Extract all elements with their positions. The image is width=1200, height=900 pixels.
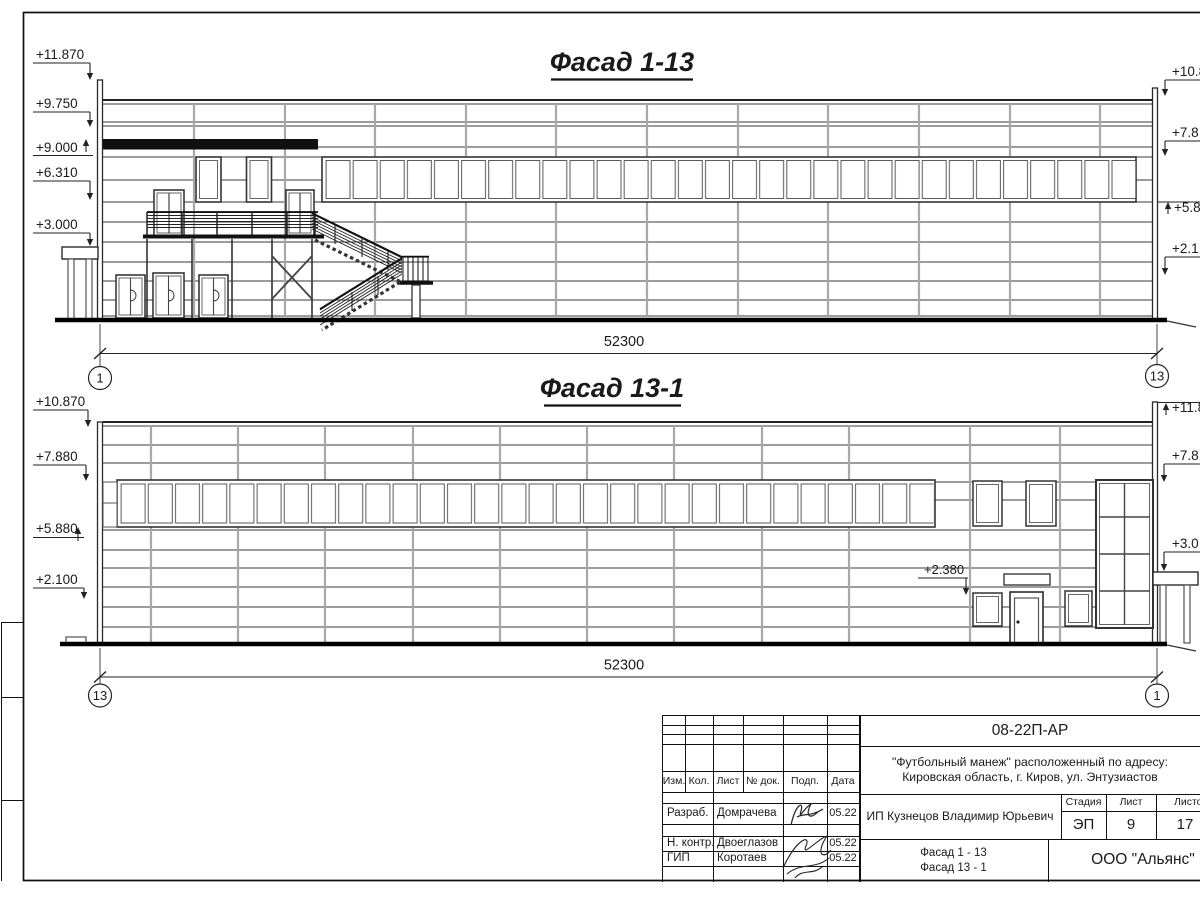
elevation-mark: +7.8	[1172, 125, 1199, 140]
balcony-door	[154, 190, 184, 236]
col-header-podp: Подп.	[783, 771, 827, 792]
organization-name: ООО "Альянс"	[1048, 839, 1200, 882]
document-number: 08-22П-АР	[859, 716, 1200, 746]
window-band-left-notch	[103, 482, 117, 527]
lower-window	[973, 593, 1002, 626]
tb-line	[663, 734, 859, 735]
elevation-mark: +9.000	[36, 140, 78, 155]
role-checker: Н. контр.	[667, 836, 713, 851]
col-header-izm: Изм.	[663, 771, 685, 792]
elevation-mark: +3.000	[36, 217, 78, 232]
elevation-mark: +5.880	[36, 521, 78, 536]
elevation-mark: +7.880	[36, 449, 78, 464]
col-header-doc: № док.	[743, 771, 783, 792]
tb-line	[663, 824, 859, 825]
sheets-label: Листов	[1156, 794, 1200, 811]
content-line-1: Фасад 1 - 13	[920, 846, 987, 860]
col-header-list: Лист	[713, 771, 743, 792]
corner-pilaster-left	[98, 80, 103, 320]
grid-bubble: 13	[93, 688, 107, 703]
tb-line	[663, 725, 859, 726]
elevation-mark: +2.1	[1172, 241, 1199, 256]
drawing-sheet: Фасад 1-13	[0, 0, 1200, 900]
elevation-mark: +10.8	[1172, 64, 1200, 79]
tb-line	[663, 792, 859, 793]
elevation-mark: +11.870	[36, 47, 84, 62]
elevation-marks-right: +10.8 +7.8 +5.8 +2.1	[1158, 64, 1200, 275]
balcony-door	[286, 190, 314, 236]
panel-joints	[194, 104, 1100, 316]
name-checker: Двоеглазов	[717, 836, 783, 851]
facade-13-1: Фасад 13-1	[33, 373, 1200, 707]
panel-joints	[151, 426, 1060, 642]
elevation-marks-right: +11.8 +7.8 +3.0	[1157, 400, 1200, 571]
project-line-1: "Футбольный манеж" расположенный по адре…	[892, 755, 1168, 770]
annotation-2380: +2.380	[918, 562, 969, 595]
elevation-mark: +3.0	[1172, 536, 1199, 551]
elevation-mark: +7.8	[1172, 448, 1199, 463]
tb-line	[663, 744, 859, 745]
role-developer: Разраб.	[667, 803, 713, 824]
elevation-mark: +10.870	[36, 394, 85, 409]
elevation-mark: +2.100	[36, 572, 78, 587]
facade-1-13: Фасад 1-13	[33, 47, 1200, 390]
window-band-panes	[325, 160, 1136, 199]
name-gip: Коротаев	[717, 851, 783, 866]
client-name: ИП Кузнецов Владимир Юрьевич	[859, 794, 1061, 839]
ground-door	[153, 273, 184, 318]
elevation-marks-left: +11.870 +9.750 +9.000 +6.310 +3.000	[33, 47, 93, 246]
title-block: Изм. Кол. Лист № док. Подп. Дата Разраб.…	[662, 715, 1200, 882]
project-title: "Футбольный манеж" расположенный по адре…	[863, 746, 1197, 794]
grid-bubble: 1	[1153, 688, 1160, 703]
elevation-mark: +6.310	[36, 165, 78, 180]
ground-line-ext	[1167, 645, 1196, 651]
upper-window	[1026, 481, 1056, 526]
dimension-value: 52300	[604, 334, 644, 350]
ground-door	[116, 275, 145, 318]
sheet-label: Лист	[1106, 794, 1156, 811]
ground-door	[199, 275, 228, 318]
external-stair	[312, 213, 433, 330]
col-header-data: Дата	[827, 771, 859, 792]
grid-bubble: 13	[1150, 369, 1164, 384]
door-canopy	[1004, 574, 1050, 585]
name-developer: Домрачева	[717, 803, 783, 824]
siding-lines	[103, 104, 1153, 316]
stage-label: Стадия	[1061, 794, 1106, 811]
sheet-number: 9	[1106, 811, 1156, 839]
elevation-mark: +2.380	[924, 562, 964, 577]
date-developer: 05.22	[827, 803, 859, 824]
content-line-2: Фасад 13 - 1	[920, 861, 987, 875]
upper-window	[247, 157, 272, 202]
upper-window	[973, 481, 1002, 526]
corner-pilaster-left	[98, 422, 103, 643]
entrance-door	[1010, 592, 1043, 644]
sheet-contents: Фасад 1 - 13 Фасад 13 - 1	[859, 839, 1048, 882]
dimension-line: 52300 13 1	[89, 648, 1169, 707]
elevation-marks-left: +10.870 +7.880 +5.880 +2.100	[33, 394, 91, 599]
elevation-mark: +9.750	[36, 96, 78, 111]
upper-window	[196, 157, 221, 202]
ground-line-ext	[1167, 321, 1196, 327]
tb-line	[713, 716, 714, 882]
facade-bottom-title: Фасад 13-1	[540, 373, 684, 403]
sheet-margin-cells	[2, 622, 24, 881]
project-line-2: Кировская область, г. Киров, ул. Энтузиа…	[902, 770, 1158, 785]
lower-window	[1065, 591, 1092, 626]
corner-pilaster-right	[1153, 88, 1158, 320]
facade-top-title: Фасад 1-13	[550, 47, 694, 77]
entrance-pedestal	[1153, 572, 1198, 643]
entrance-pedestal	[62, 247, 98, 320]
window-band-panes	[120, 484, 934, 524]
stage-value: ЭП	[1061, 811, 1106, 839]
signature-checker-gip	[777, 828, 833, 880]
glazed-panel	[1096, 480, 1153, 628]
dimension-value: 52300	[604, 658, 644, 674]
role-gip: ГИП	[667, 851, 713, 866]
sheets-total: 17	[1156, 811, 1200, 839]
grid-bubble: 1	[96, 371, 103, 386]
col-header-kol: Кол.	[685, 771, 713, 792]
canopy-strip	[103, 139, 318, 150]
